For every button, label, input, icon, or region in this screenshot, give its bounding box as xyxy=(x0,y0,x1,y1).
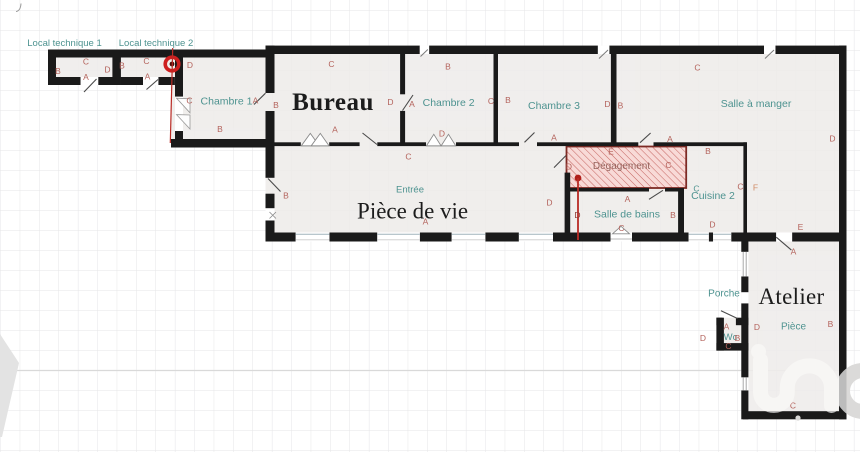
svg-text:Dégagement: Dégagement xyxy=(593,161,650,172)
svg-text:D: D xyxy=(709,220,715,230)
svg-text:D: D xyxy=(387,97,393,107)
svg-text:D: D xyxy=(566,162,572,172)
svg-text:A: A xyxy=(409,99,415,109)
svg-text:B: B xyxy=(618,101,624,111)
svg-text:Local technique 1: Local technique 1 xyxy=(27,38,101,49)
svg-text:C: C xyxy=(143,56,149,66)
svg-text:C: C xyxy=(83,57,89,67)
svg-text:A: A xyxy=(667,134,673,144)
svg-text:C: C xyxy=(488,96,494,106)
svg-text:F: F xyxy=(753,183,758,193)
svg-text:B: B xyxy=(283,191,289,201)
svg-text:B: B xyxy=(119,61,125,71)
svg-text:Pièce: Pièce xyxy=(781,322,806,333)
svg-text:Local technique 2: Local technique 2 xyxy=(119,38,193,49)
svg-text:D: D xyxy=(829,134,835,144)
svg-text:D: D xyxy=(700,333,706,343)
svg-text:A: A xyxy=(332,125,338,135)
svg-text:A: A xyxy=(253,96,259,106)
svg-text:B: B xyxy=(828,319,834,329)
svg-text:C: C xyxy=(725,341,731,351)
svg-text:C: C xyxy=(737,182,743,192)
svg-text:D: D xyxy=(754,322,760,332)
svg-text:B: B xyxy=(217,124,223,134)
svg-text:Atelier: Atelier xyxy=(759,284,825,309)
svg-text:C: C xyxy=(328,59,334,69)
svg-text:Entrée: Entrée xyxy=(396,184,424,195)
svg-text:Porche: Porche xyxy=(708,289,740,300)
svg-text:A: A xyxy=(724,322,730,332)
svg-text:Chambre 2: Chambre 2 xyxy=(423,97,475,109)
svg-text:B: B xyxy=(55,66,61,76)
svg-text:Pièce de vie: Pièce de vie xyxy=(357,199,468,224)
svg-text:C: C xyxy=(693,184,699,194)
svg-text:Salle de bains: Salle de bains xyxy=(594,209,660,221)
svg-text:D: D xyxy=(104,65,110,75)
svg-text:Bureau: Bureau xyxy=(292,89,374,116)
svg-text:B: B xyxy=(445,62,451,72)
svg-text:A: A xyxy=(551,133,557,143)
svg-text:D: D xyxy=(439,129,445,139)
svg-text:Salle à manger: Salle à manger xyxy=(721,98,792,110)
svg-text:B: B xyxy=(273,100,279,110)
svg-text:B: B xyxy=(705,146,711,156)
svg-text:B: B xyxy=(505,95,511,105)
svg-text:C: C xyxy=(694,63,700,73)
svg-text:Chambre 3: Chambre 3 xyxy=(528,100,580,112)
svg-text:E: E xyxy=(798,222,804,232)
svg-text:C: C xyxy=(618,223,624,233)
svg-text:A: A xyxy=(83,72,89,82)
svg-text:A: A xyxy=(423,217,429,227)
svg-text:D: D xyxy=(187,60,193,70)
svg-text:D: D xyxy=(574,210,580,220)
svg-text:E: E xyxy=(608,147,614,157)
svg-text:C: C xyxy=(665,160,671,170)
svg-text:D: D xyxy=(604,99,610,109)
svg-text:D: D xyxy=(546,198,552,208)
svg-text:B: B xyxy=(670,210,676,220)
svg-text:A: A xyxy=(145,72,151,82)
svg-text:B: B xyxy=(735,333,741,343)
svg-text:A: A xyxy=(625,194,631,204)
svg-text:C: C xyxy=(186,96,192,106)
svg-text:C: C xyxy=(405,152,411,162)
svg-text:A: A xyxy=(791,247,797,257)
svg-text:Chambre 1: Chambre 1 xyxy=(201,95,253,107)
